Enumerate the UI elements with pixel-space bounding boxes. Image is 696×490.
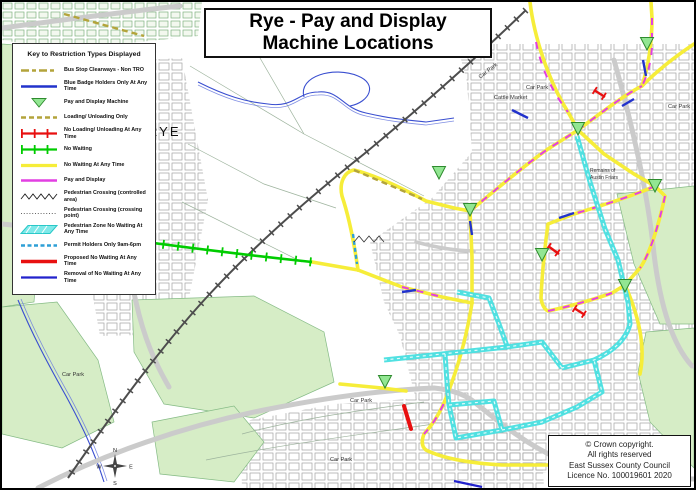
pay-display-machine-swatch-icon xyxy=(19,97,59,108)
legend-item-pedestrian-zone: Pedestrian Zone No Waiting At Any Time xyxy=(19,223,149,236)
car-park-label: Car Park xyxy=(350,398,372,404)
legend-item-permit-holders: Permit Holders Only 9am-6pm xyxy=(19,239,149,251)
legend-item-bus-stop-clearway: Bus Stop Clearways - Non TRO xyxy=(19,64,149,76)
bus-stop-clearway-swatch-icon xyxy=(19,65,59,76)
pedestrian-crossing-point-swatch-icon xyxy=(19,208,59,219)
map-title-line2: Machine Locations xyxy=(262,33,433,55)
compass-w-label: W xyxy=(96,465,102,471)
copyright-line4: Licence No. 100019601 2020 xyxy=(551,471,688,481)
legend-title: Key to Restriction Types Displayed xyxy=(17,51,151,58)
car-park-label: Car Park xyxy=(668,104,690,110)
legend-item-label: No Waiting xyxy=(64,146,92,152)
pedestrian-zone-swatch-icon xyxy=(19,224,59,235)
pay-and-display-swatch-icon xyxy=(19,175,59,186)
no-loading-swatch-icon xyxy=(19,128,59,139)
permit-holders-swatch-icon xyxy=(19,240,59,251)
legend-item-removal-no-waiting: Removal of No Waiting At Any Time xyxy=(19,271,149,284)
car-park-label: Car Park xyxy=(526,85,548,91)
legend-item-label: No Loading/ Unloading At Any Time xyxy=(64,127,149,140)
map-title-box: Rye - Pay and Display Machine Locations xyxy=(204,8,492,58)
legend-item-no-waiting-any-time: No Waiting At Any Time xyxy=(19,159,149,171)
remains-label-line1: Remains of xyxy=(590,168,616,174)
legend-item-label: No Waiting At Any Time xyxy=(64,162,124,168)
removal-no-waiting-swatch-icon xyxy=(19,272,59,283)
compass-s-label: S xyxy=(113,481,117,487)
legend-item-pay-display-machine: Pay and Display Machine xyxy=(19,96,149,108)
legend-box: Key to Restriction Types Displayed Bus S… xyxy=(12,43,156,295)
copyright-box: © Crown copyright. All rights reserved E… xyxy=(548,435,691,487)
loading-only-swatch-icon xyxy=(19,112,59,123)
legend-item-label: Pedestrian Zone No Waiting At Any Time xyxy=(64,223,149,236)
legend-item-no-waiting: No Waiting xyxy=(19,143,149,155)
legend-item-label: Pay and Display xyxy=(64,177,105,183)
legend-item-label: Removal of No Waiting At Any Time xyxy=(64,271,149,284)
legend-item-label: Pedestrian Crossing (crossing point) xyxy=(64,207,149,220)
copyright-line3: East Sussex County Council xyxy=(551,461,688,471)
proposed-no-waiting-swatch-icon xyxy=(19,256,59,267)
legend-item-label: Pedestrian Crossing (controlled area) xyxy=(64,190,149,203)
legend-item-label: Pay and Display Machine xyxy=(64,99,128,105)
legend-item-pedestrian-crossing-point: Pedestrian Crossing (crossing point) xyxy=(19,207,149,220)
copyright-line2: All rights reserved xyxy=(551,450,688,460)
map-sheet: RYE Car Park Cattle Market Car Park Car … xyxy=(0,0,696,490)
legend-item-label: Proposed No Waiting At Any Time xyxy=(64,255,149,268)
legend-item-label: Bus Stop Clearways - Non TRO xyxy=(64,67,144,73)
legend-item-pedestrian-crossing-controlled: Pedestrian Crossing (controlled area) xyxy=(19,190,149,203)
cattle-market-label: Cattle Market xyxy=(494,95,528,101)
compass-e-label: E xyxy=(129,465,133,471)
car-park-label: Car Park xyxy=(330,457,352,463)
legend-item-label: Permit Holders Only 9am-6pm xyxy=(64,242,141,248)
legend-item-no-loading-unloading: No Loading/ Unloading At Any Time xyxy=(19,127,149,140)
legend-item-proposed-no-waiting: Proposed No Waiting At Any Time xyxy=(19,255,149,268)
blue-badge-swatch-icon xyxy=(19,81,59,92)
pedestrian-crossing-controlled-swatch-icon xyxy=(19,191,59,202)
legend-item-pay-and-display: Pay and Display xyxy=(19,175,149,187)
legend-item-label: Blue Badge Holders Only At Any Time xyxy=(64,80,149,93)
no-waiting-swatch-icon xyxy=(19,144,59,155)
car-park-label: Car Park xyxy=(62,372,84,378)
compass-n-label: N xyxy=(113,448,117,454)
legend-item-label: Loading/ Unloading Only xyxy=(64,114,128,120)
no-waiting-any-time-swatch-icon xyxy=(19,160,59,171)
map-title-line1: Rye - Pay and Display xyxy=(249,11,446,33)
copyright-line1: © Crown copyright. xyxy=(551,440,688,450)
legend-item-blue-badge: Blue Badge Holders Only At Any Time xyxy=(19,80,149,93)
legend-item-loading-unloading-only: Loading/ Unloading Only xyxy=(19,112,149,124)
remains-label-line2: Austin Friars xyxy=(590,175,619,181)
